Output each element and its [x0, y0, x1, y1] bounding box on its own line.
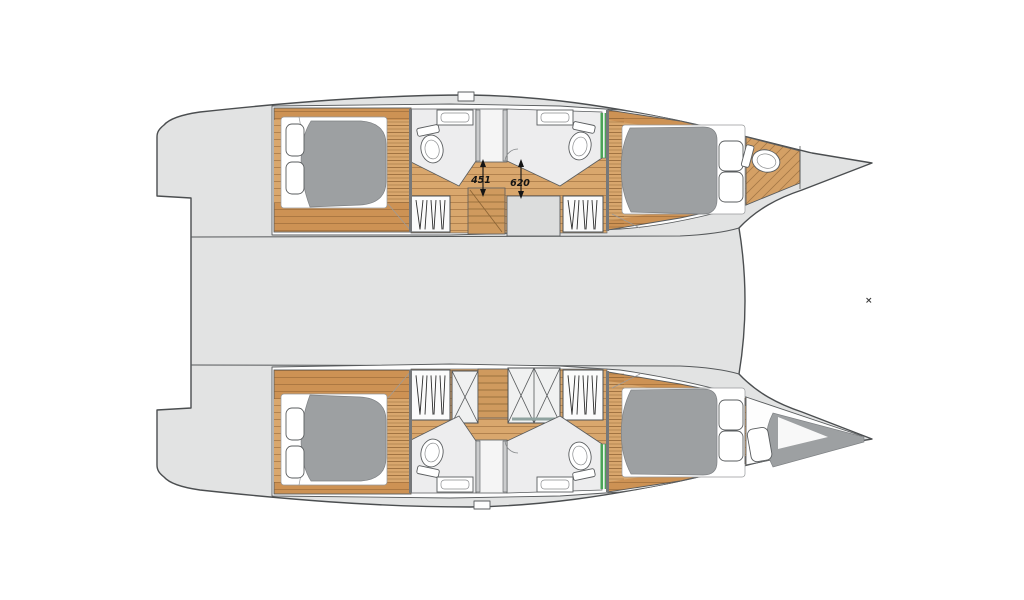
pillow: [286, 408, 304, 440]
pillow: [286, 446, 304, 478]
dimension-label: 620: [510, 178, 530, 189]
pillow: [719, 400, 743, 430]
sink-icon: [437, 110, 473, 125]
dimension-label: 451: [470, 175, 491, 186]
door-panel: [476, 110, 480, 161]
companionway-landing: [476, 109, 507, 162]
aft-cabin-top: [274, 108, 411, 232]
floor-plan-canvas: 451 620 ×: [0, 0, 1024, 600]
door-panel: [476, 441, 480, 492]
cabinet: [507, 196, 560, 236]
bed-mattress: [301, 121, 386, 207]
deck-hatch-bottom: [474, 501, 490, 509]
sink-icon: [437, 477, 473, 492]
bulkhead: [606, 110, 609, 231]
bulkhead: [606, 371, 609, 492]
bulkhead: [409, 370, 412, 493]
bulkhead: [409, 109, 412, 232]
pillow: [719, 431, 743, 461]
sink-icon: [537, 477, 573, 492]
door-panel: [503, 110, 507, 161]
companionway-landing: [476, 440, 507, 493]
pillow: [286, 124, 304, 156]
door-panel: [503, 441, 507, 492]
bottom-hull: [272, 364, 864, 498]
sink-icon: [537, 110, 573, 125]
pillow: [719, 141, 743, 171]
forward-cabin-top: [608, 110, 746, 230]
forward-cabin-bottom: [608, 372, 746, 492]
floor-plan: 451 620 ×: [0, 0, 1024, 600]
bed-mattress: [621, 389, 717, 475]
pillow: [286, 162, 304, 194]
sliding-door-accent: [601, 113, 604, 158]
pillow: [719, 172, 743, 202]
deck-hatch-top: [458, 92, 474, 101]
bed-mattress: [301, 395, 386, 481]
aft-cabin-bottom: [274, 370, 411, 494]
x-marker-icon: ×: [865, 296, 873, 306]
bed-mattress: [621, 127, 717, 214]
sliding-door-accent: [601, 444, 604, 489]
